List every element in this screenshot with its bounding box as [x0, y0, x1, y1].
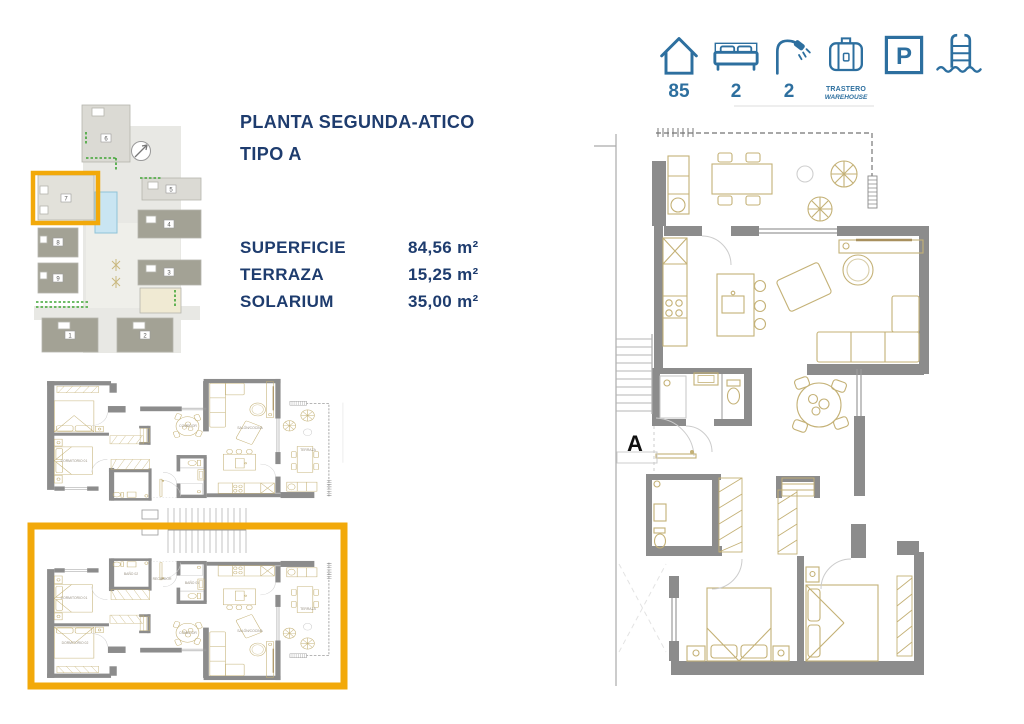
building-floor-plan: DORMITORIO 01 DORMITORIO 02 BAÑO 01 BAÑO… — [26, 368, 356, 703]
svg-text:DORMITORIO 02: DORMITORIO 02 — [62, 641, 89, 645]
svg-text:DORMITORIO 01: DORMITORIO 01 — [61, 459, 88, 463]
house-icon — [653, 28, 705, 82]
pool-icon — [931, 28, 987, 82]
upper-unit — [47, 379, 343, 501]
amenity-parking: P — [878, 28, 930, 82]
north-arrow-icon — [132, 142, 151, 161]
svg-text:RECIBIDOR: RECIBIDOR — [153, 577, 172, 581]
svg-text:BAÑO 02: BAÑO 02 — [124, 571, 138, 576]
bedrooms-value: 2 — [731, 83, 742, 101]
measure-label: TERRAZA — [240, 265, 408, 285]
measure-value: 35,00 m² — [408, 292, 478, 312]
building-stair-core — [142, 508, 246, 553]
measure-label: SOLARIUM — [240, 292, 408, 312]
measure-row-superficie: SUPERFICIE 84,56 m² — [240, 234, 478, 261]
bed-icon — [709, 28, 763, 82]
measure-value: 15,25 m² — [408, 265, 478, 285]
plan-title: PLANTA SEGUNDA-ATICO TIPO A — [240, 106, 475, 170]
svg-text:SALÓN/COCINA: SALÓN/COCINA — [237, 425, 263, 430]
amenity-pool — [930, 28, 988, 82]
measurements-table: SUPERFICIE 84,56 m² TERRAZA 15,25 m² SOL… — [240, 234, 478, 315]
svg-text:SALÓN/COCINA: SALÓN/COCINA — [237, 628, 263, 633]
svg-text:COMEDOR: COMEDOR — [179, 424, 197, 428]
amenity-bedrooms: 2 — [708, 28, 764, 101]
amenity-bar: 85 2 2 TRASTERO WAREHOUSE P — [650, 28, 995, 102]
main-floor-plan: A — [593, 104, 945, 708]
storage-icon — [821, 28, 871, 82]
parking-letter: P — [896, 43, 912, 70]
svg-text:DORMITORIO 01: DORMITORIO 01 — [61, 596, 88, 600]
measure-value: 84,56 m² — [408, 238, 478, 258]
shower-icon — [764, 28, 814, 82]
plan-title-line1: PLANTA SEGUNDA-ATICO — [240, 106, 475, 138]
bathrooms-value: 2 — [784, 83, 795, 101]
site-plan: 1 2 3 4 5 6 7 8 9 — [28, 98, 218, 363]
svg-text:TERRAZA: TERRAZA — [300, 607, 317, 611]
amenity-bathrooms: 2 — [764, 28, 814, 101]
measure-row-solarium: SOLARIUM 35,00 m² — [240, 288, 478, 315]
plan-type-letter: A — [627, 431, 643, 456]
lower-unit — [47, 558, 343, 680]
plan-title-line2: TIPO A — [240, 138, 475, 170]
parking-icon: P — [880, 28, 928, 82]
surface-value: 85 — [668, 83, 689, 101]
measure-label: SUPERFICIE — [240, 238, 408, 258]
svg-text:COMEDOR: COMEDOR — [179, 631, 197, 635]
measure-row-terraza: TERRAZA 15,25 m² — [240, 261, 478, 288]
amenity-surface: 85 — [650, 28, 708, 101]
svg-text:BAÑO 01: BAÑO 01 — [185, 580, 199, 585]
amenity-storage: TRASTERO WAREHOUSE — [814, 28, 878, 102]
brochure-page: { "page": { "title_line1": "PLANTA SEGUN… — [0, 0, 1024, 724]
storage-label: TRASTERO — [826, 86, 866, 94]
svg-text:TERRAZA: TERRAZA — [300, 448, 317, 452]
storage-sublabel: WAREHOUSE — [825, 94, 868, 102]
